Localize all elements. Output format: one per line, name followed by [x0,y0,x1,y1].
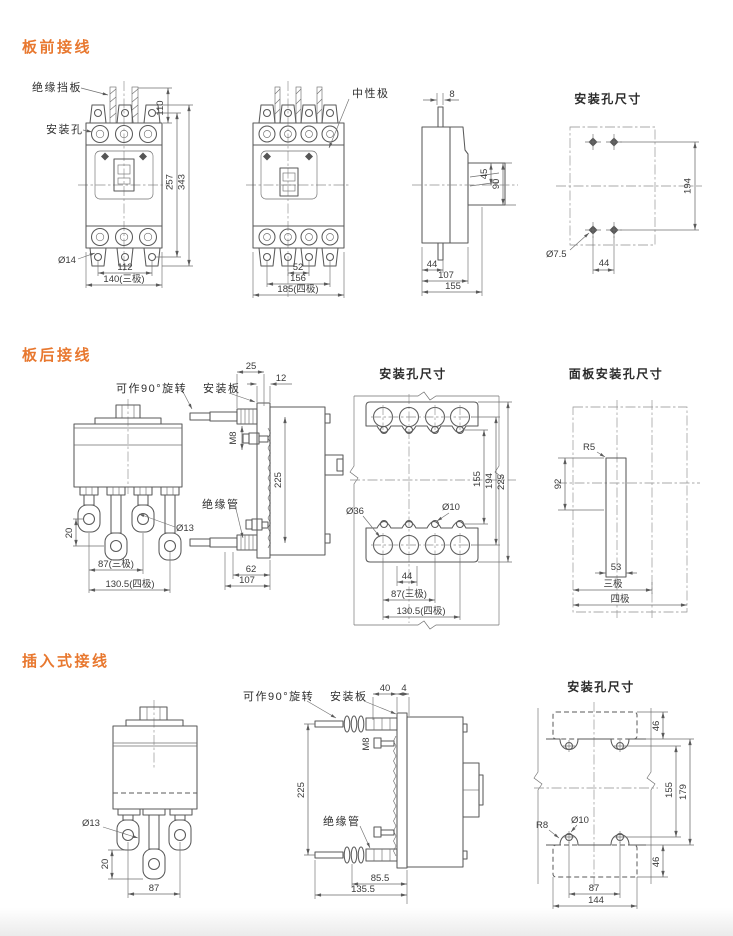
insulation-barrier-label: 绝缘挡板 [32,80,82,94]
dia-13-label: Ø13 [82,818,100,829]
dim-155-label: 155 [664,782,675,798]
dim-343-label: 343 [177,174,188,190]
neutral-pole-label: 中性极 [352,86,390,100]
mounting-holes-title: 安装孔尺寸 [567,679,635,694]
dim-44-label: 44 [427,259,438,270]
dim-155-label: 155 [445,281,461,292]
dim-257-label: 257 [165,174,176,190]
plugin-front-view: Ø13 20 87 [82,700,197,898]
dim-185-label: 185(四极) [277,283,318,295]
breaker-wiring-datasheet-page: 板前接线 [0,0,733,936]
dim-25-label: 25 [246,362,257,372]
dim-135-5-label: 135.5 [351,884,375,895]
plugin-side-view: 可作90°旋转 安装板 40 4 M8 绝缘管 [243,683,483,904]
dim-85-5-label: 85.5 [371,873,390,884]
side-view-front-wiring: 8 45 90 44 107 155 [412,89,518,296]
plugin-wiring-drawings: Ø13 20 87 可作90°旋转 安装板 40 4 M8 [0,672,733,936]
dim-62-label: 62 [246,564,257,575]
dim-46-bottom-label: 46 [651,857,662,868]
dim-46-top-label: 46 [651,721,662,732]
bolt-m8-label: M8 [361,737,372,750]
dim-144-label: 144 [588,895,604,906]
mounting-holes-plugin: 安装孔尺寸 R8 Ø10 46 155 179 46 [534,679,694,909]
dim-44-label: 44 [599,258,610,269]
rear-wiring-drawings: Ø13 20 87(三极) 130.5(四极) 可作90°旋转 安装板 M8 [0,362,733,640]
dim-20-label: 20 [100,859,111,870]
dim-92-label: 92 [553,479,564,490]
dim-87-label: 87(三极) [98,558,134,570]
dim-90-label: 90 [491,179,502,190]
mounting-plate-label: 安装板 [330,689,368,703]
dim-194-label: 194 [683,178,694,194]
mounting-holes-title: 安装孔尺寸 [379,366,447,381]
dia-10-label: Ø10 [442,502,460,513]
four-pole-label: 四极 [610,593,630,605]
rotate-90-label: 可作90°旋转 [243,689,314,703]
dim-225-label: 225 [496,474,507,490]
rotate-90-label: 可作90°旋转 [116,381,187,395]
front-view-4pole: 中性极 52 156 185(四极) [246,81,390,298]
dim-52-label: 52 [293,262,304,273]
section-heading-front-wiring: 板前接线 [22,36,92,57]
bolt-m8-label: M8 [228,431,239,444]
dim-87-label: 87 [589,883,600,894]
dia-36-label: Ø36 [346,506,364,517]
mounting-holes-title: 安装孔尺寸 [574,91,642,106]
dim-107-label: 107 [438,270,454,281]
dim-53-label: 53 [611,562,622,573]
side-view-rear-wiring: 安装板 M8 绝缘管 25 12 [190,362,343,590]
dim-194-label: 194 [484,473,495,489]
panel-cutout-title: 面板安装孔尺寸 [569,366,664,381]
dim-8-label: 8 [449,89,454,100]
dim-155-label: 155 [472,471,483,487]
page-bottom-fade [0,908,733,936]
front-view-3pole: 110 257 343 112 140(三极) 绝缘挡板 安装孔 Ø14 [32,80,193,288]
rear-view: Ø13 20 87(三极) 130.5(四极) 可作90°旋转 [64,381,194,593]
dim-156-label: 156 [290,273,306,284]
dia-10-label: Ø10 [571,815,589,826]
dim-12-label: 12 [276,373,287,384]
dim-140-label: 140(三极) [103,273,144,285]
dim-45-label: 45 [479,169,490,180]
mounting-holes-rear-wiring: 安装孔尺寸 155 194 225 44 [346,366,516,629]
dia-13-label: Ø13 [176,523,194,534]
dim-44-label: 44 [402,571,413,582]
dim-107-label: 107 [239,575,255,586]
mounting-hole-label: 安装孔 [46,122,84,136]
mounting-holes-front-wiring: 安装孔尺寸 194 Ø7.5 44 [546,91,702,274]
dim-110-label: 110 [155,100,166,115]
insulation-tube-label: 绝缘管 [323,814,361,828]
dim-112-label: 112 [117,262,132,273]
dim-87-label: 87(三极) [391,588,427,600]
dim-130-5-label: 130.5(四极) [396,605,445,617]
dim-40-label: 40 [380,683,391,694]
radius-r8-label: R8 [536,820,548,831]
dim-4-label: 4 [401,683,406,694]
dim-87-label: 87 [149,883,160,894]
dim-225-label: 225 [296,782,307,798]
mounting-plate-label: 安装板 [203,381,241,395]
front-wiring-drawings: 110 257 343 112 140(三极) 绝缘挡板 安装孔 Ø14 [0,60,733,310]
dim-179-label: 179 [678,784,689,800]
radius-r5-label: R5 [583,442,595,453]
dim-130-5-label: 130.5(四极) [105,578,154,590]
section-heading-plugin-wiring: 插入式接线 [22,650,110,671]
dia-14-label: Ø14 [58,255,76,266]
dim-225-label: 225 [273,472,284,488]
dia-7-5-label: Ø7.5 [546,249,567,260]
panel-cutout: 面板安装孔尺寸 R5 92 53 三极 四极 [553,366,700,618]
insulation-tube-label: 绝缘管 [202,497,240,511]
three-pole-label: 三极 [603,578,623,590]
dim-20-label: 20 [64,528,75,539]
